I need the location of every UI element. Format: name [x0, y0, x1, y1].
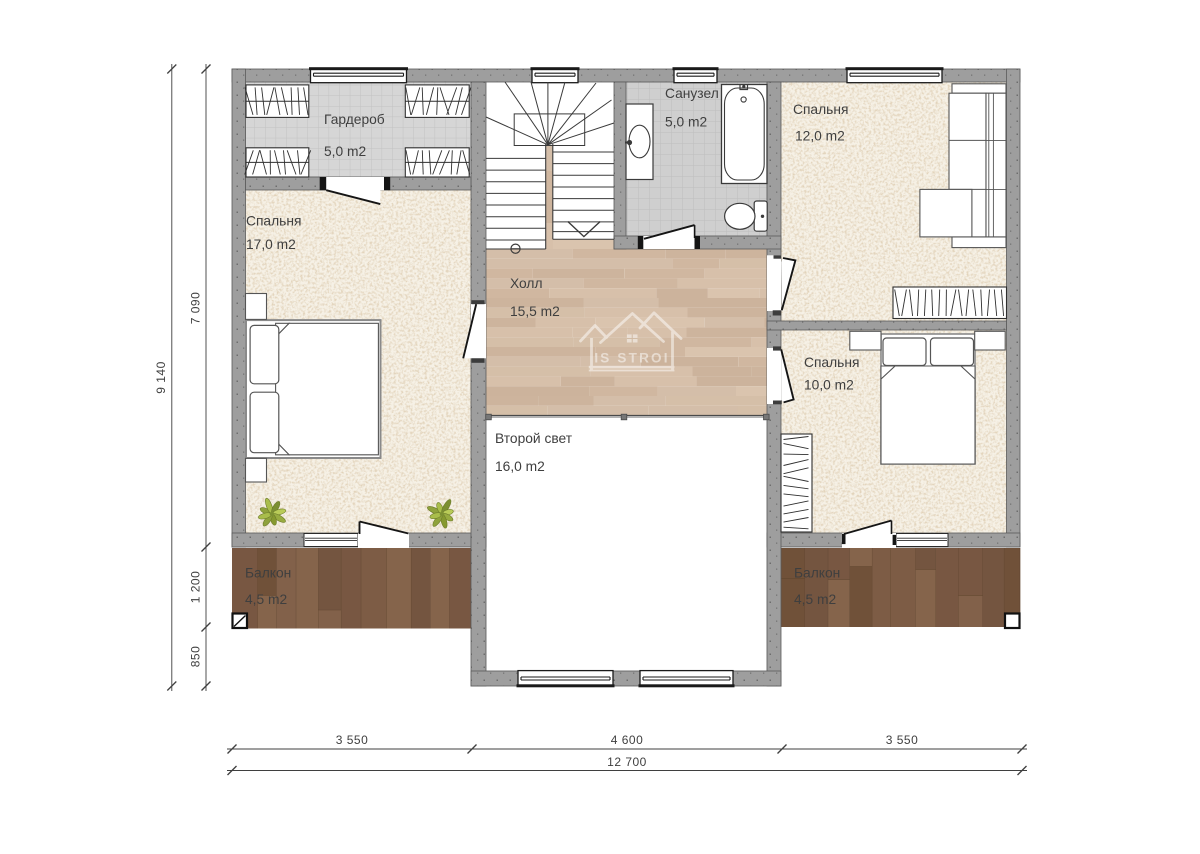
svg-text:Балкон: Балкон [794, 566, 840, 581]
svg-text:12,0 m2: 12,0 m2 [795, 129, 845, 144]
svg-text:9 140: 9 140 [154, 361, 168, 394]
svg-text:3 550: 3 550 [886, 733, 919, 747]
svg-text:Санузел: Санузел [665, 86, 719, 101]
svg-text:10,0 m2: 10,0 m2 [804, 378, 854, 393]
svg-text:16,0 m2: 16,0 m2 [495, 459, 545, 474]
svg-text:1 200: 1 200 [189, 571, 203, 604]
svg-text:Холл: Холл [510, 276, 543, 291]
svg-text:IS STROI: IS STROI [594, 351, 669, 366]
svg-text:Спальня: Спальня [246, 214, 301, 229]
svg-text:Второй свет: Второй свет [495, 431, 573, 446]
svg-text:15,5 m2: 15,5 m2 [510, 304, 560, 319]
svg-text:Спальня: Спальня [793, 102, 848, 117]
svg-text:7 090: 7 090 [189, 292, 203, 325]
svg-text:5,0 m2: 5,0 m2 [324, 144, 366, 159]
svg-text:4 600: 4 600 [611, 733, 644, 747]
svg-text:Спальня: Спальня [804, 355, 859, 370]
svg-text:4,5 m2: 4,5 m2 [794, 592, 836, 607]
svg-text:850: 850 [189, 646, 203, 668]
svg-text:4,5 m2: 4,5 m2 [245, 592, 287, 607]
svg-text:3 550: 3 550 [336, 733, 369, 747]
svg-text:17,0 m2: 17,0 m2 [246, 237, 296, 252]
svg-text:Балкон: Балкон [245, 566, 291, 581]
svg-text:5,0 m2: 5,0 m2 [665, 115, 707, 130]
svg-text:Гардероб: Гардероб [324, 112, 385, 127]
svg-text:12 700: 12 700 [607, 755, 647, 769]
